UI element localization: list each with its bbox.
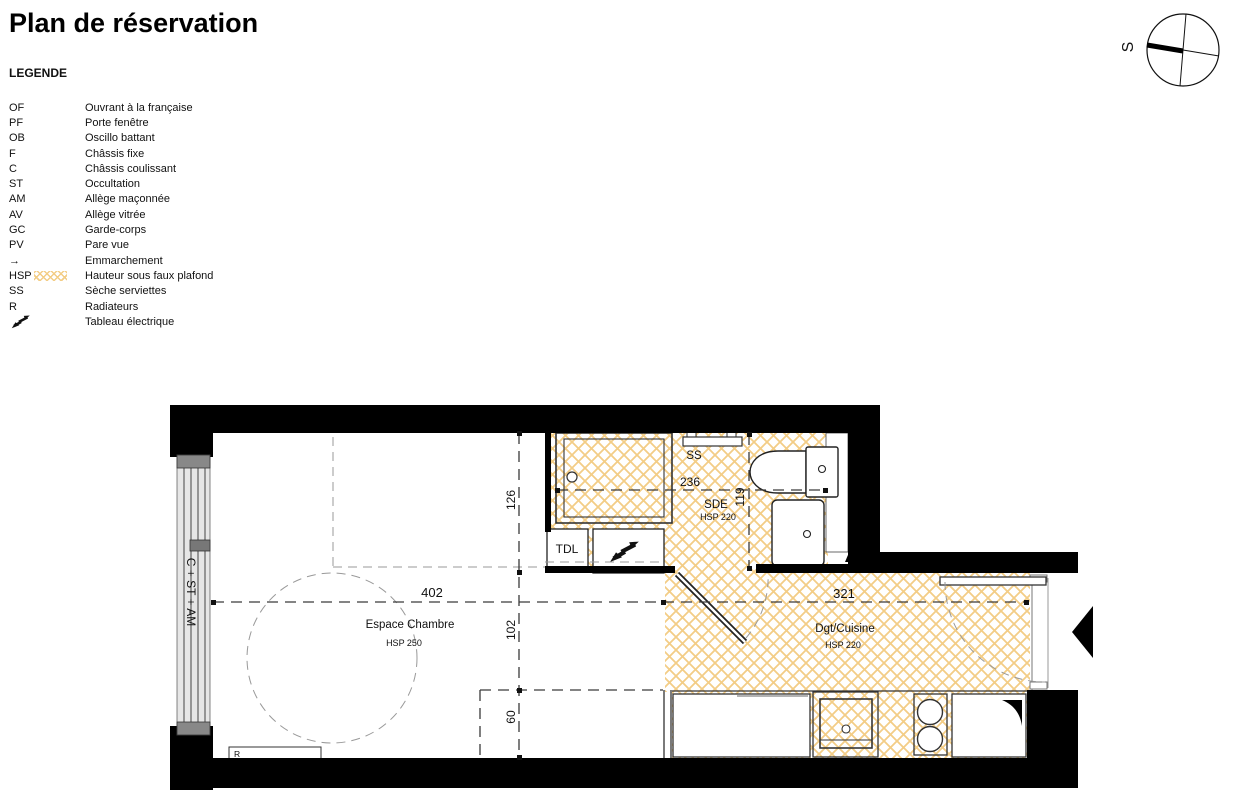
dim-321: 321	[833, 586, 855, 601]
ss-label: SS	[686, 450, 702, 462]
dim-119: 119	[733, 487, 747, 506]
dim-236: 236	[680, 475, 700, 489]
window-cap	[177, 722, 210, 735]
washbasin-unit	[772, 500, 824, 566]
wall-sde-left	[545, 430, 551, 532]
burner	[918, 700, 943, 725]
kitchen-cabinet	[673, 694, 810, 757]
dim-402: 402	[421, 585, 443, 600]
floor-plan: Espace Chambre HSP 250 SDE HSP 220 Dgt/C…	[0, 0, 1251, 793]
room-label-chambre: Espace Chambre	[366, 619, 455, 631]
wall-right-sde	[848, 405, 880, 573]
radiator-label: R	[234, 749, 240, 759]
wall-left-bottom	[170, 726, 213, 790]
compass-icon: S	[1120, 14, 1219, 86]
room-hsp-cuisine: HSP 220	[825, 640, 861, 650]
door-leaf	[940, 577, 1046, 585]
compass-south-label: S	[1120, 42, 1137, 53]
shower-drain	[567, 472, 577, 482]
turning-circle	[247, 573, 417, 743]
burner	[918, 727, 943, 752]
window-cap	[190, 540, 210, 551]
dim-102: 102	[504, 620, 518, 640]
compass-south-bar	[1147, 45, 1183, 51]
wall-bottom	[170, 758, 1078, 788]
room-hsp-sde: HSP 220	[700, 512, 736, 522]
dim-60: 60	[504, 710, 518, 724]
window-cap	[177, 455, 210, 468]
wall-sde-bottom-right	[756, 564, 848, 573]
sink-drain	[842, 725, 850, 733]
room-hsp-chambre: HSP 250	[386, 638, 422, 648]
door-frame-trim	[1030, 682, 1047, 689]
room-label-sde: SDE	[704, 499, 728, 511]
dim-126: 126	[504, 490, 518, 510]
wall-left-top	[170, 405, 213, 457]
room-label-cuisine: Dgt/Cuisine	[815, 623, 874, 635]
wall-top	[170, 405, 880, 433]
window-label: C + ST + AM	[184, 558, 198, 626]
wall-sde-bottom-left	[545, 566, 675, 573]
fridge-space	[952, 694, 1026, 757]
wall-band	[848, 552, 1078, 573]
tdl-label: TDL	[556, 542, 579, 556]
